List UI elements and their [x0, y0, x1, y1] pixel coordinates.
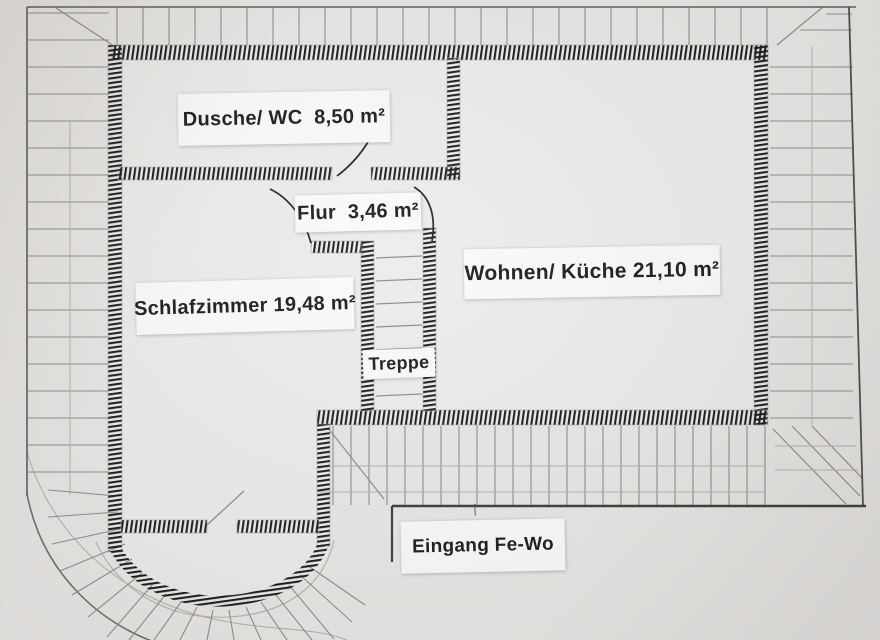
- room-label-dusche-wc: Dusche/ WC 8,50 m²: [178, 90, 391, 146]
- room-label-schlafzimmer: Schlafzimmer 19,48 m²: [135, 277, 354, 335]
- floor-plan: Dusche/ WC 8,50 m² Flur 3,46 m² Wohnen/ …: [0, 0, 880, 640]
- room-label-treppe: Treppe: [363, 348, 436, 379]
- room-label-eingang-fewo: Eingang Fe-Wo: [400, 518, 565, 573]
- room-label-wohnen-kueche: Wohnen/ Küche 21,10 m²: [464, 245, 721, 299]
- room-label-flur: Flur 3,46 m²: [295, 192, 422, 232]
- entrance-arrow-icon: ↑: [469, 498, 480, 521]
